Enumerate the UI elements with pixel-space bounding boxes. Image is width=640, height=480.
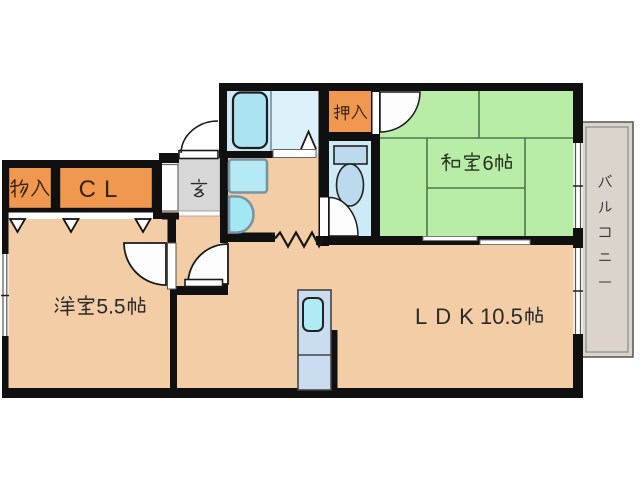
svg-text:10.5: 10.5 <box>480 304 523 329</box>
svg-text:6: 6 <box>482 153 493 175</box>
svg-text:LDK: LDK <box>415 304 482 329</box>
svg-text:CL: CL <box>79 176 126 203</box>
svg-text:5.5: 5.5 <box>96 296 125 319</box>
